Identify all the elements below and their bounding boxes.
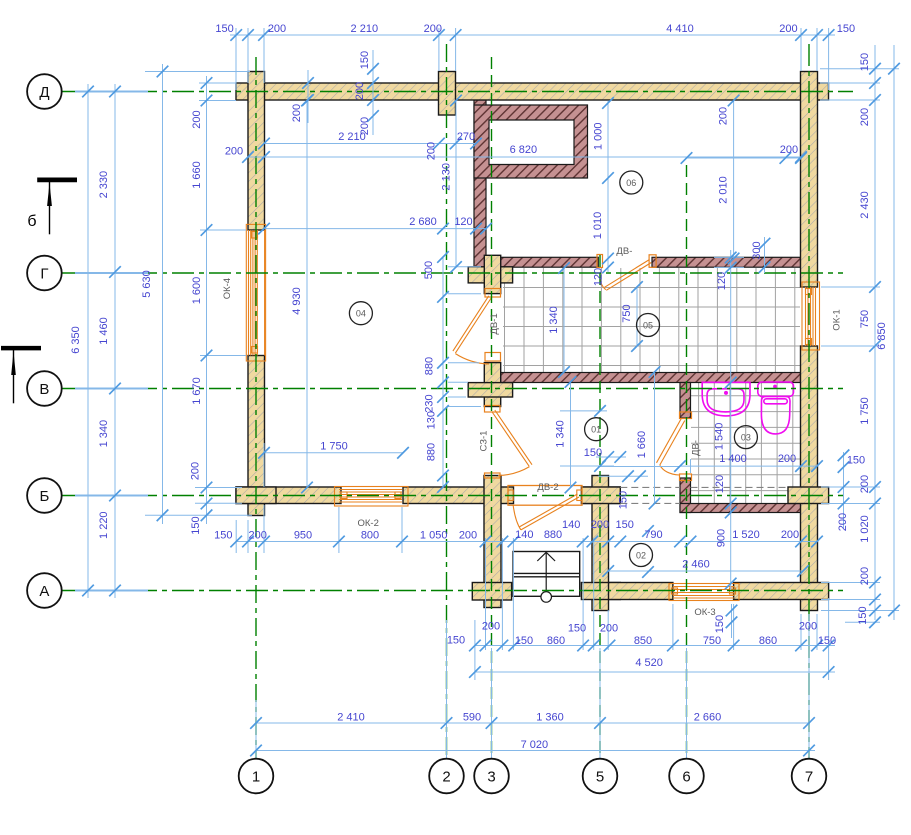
- svg-text:Д: Д: [39, 84, 49, 101]
- svg-text:200: 200: [859, 567, 871, 585]
- svg-text:б: б: [27, 213, 36, 230]
- svg-text:880: 880: [544, 529, 562, 541]
- svg-text:750: 750: [703, 635, 721, 647]
- svg-text:1 660: 1 660: [636, 431, 648, 459]
- svg-text:1 520: 1 520: [732, 529, 760, 541]
- svg-text:1 750: 1 750: [320, 441, 348, 453]
- svg-text:850: 850: [634, 635, 652, 647]
- svg-text:200: 200: [859, 475, 871, 493]
- svg-text:750: 750: [621, 304, 633, 322]
- svg-text:200: 200: [780, 144, 798, 156]
- svg-text:04: 04: [356, 309, 366, 319]
- svg-text:ОК-1: ОК-1: [832, 309, 843, 330]
- svg-text:120: 120: [714, 475, 726, 493]
- svg-text:6 850: 6 850: [876, 322, 888, 350]
- svg-text:01: 01: [591, 425, 601, 435]
- svg-text:2 680: 2 680: [409, 216, 437, 228]
- svg-text:1 540: 1 540: [714, 423, 726, 451]
- svg-text:200: 200: [426, 142, 438, 160]
- svg-text:1 020: 1 020: [859, 515, 871, 543]
- svg-text:4 410: 4 410: [666, 23, 694, 35]
- svg-text:5 630: 5 630: [141, 270, 153, 298]
- svg-text:950: 950: [294, 530, 312, 542]
- svg-text:200: 200: [600, 623, 618, 635]
- svg-text:300: 300: [751, 241, 763, 259]
- svg-text:200: 200: [359, 117, 371, 135]
- svg-text:200: 200: [249, 530, 267, 542]
- svg-text:200: 200: [799, 621, 817, 633]
- svg-text:200: 200: [291, 104, 303, 122]
- svg-text:200: 200: [354, 82, 366, 100]
- svg-text:2: 2: [442, 769, 450, 786]
- svg-text:ДВ-: ДВ-: [616, 246, 632, 257]
- svg-text:06: 06: [626, 178, 636, 188]
- svg-text:ДВ-: ДВ-: [691, 440, 702, 456]
- svg-text:1 340: 1 340: [555, 420, 567, 448]
- svg-text:860: 860: [547, 635, 565, 647]
- svg-text:150: 150: [515, 635, 533, 647]
- svg-text:150: 150: [359, 51, 371, 69]
- svg-text:150: 150: [618, 491, 630, 509]
- svg-text:1 050: 1 050: [420, 530, 448, 542]
- svg-text:150: 150: [859, 53, 871, 71]
- svg-text:790: 790: [644, 529, 662, 541]
- svg-text:4 520: 4 520: [635, 657, 663, 669]
- svg-text:150: 150: [215, 23, 233, 35]
- svg-text:880: 880: [424, 357, 436, 375]
- svg-text:2 010: 2 010: [718, 176, 730, 204]
- svg-text:200: 200: [190, 462, 202, 480]
- svg-text:1 600: 1 600: [191, 277, 203, 305]
- svg-text:СЗ-1: СЗ-1: [478, 431, 489, 452]
- svg-text:2 430: 2 430: [859, 191, 871, 219]
- svg-text:1 360: 1 360: [536, 712, 564, 724]
- svg-text:800: 800: [361, 530, 379, 542]
- svg-text:2 330: 2 330: [98, 171, 110, 199]
- svg-text:1 340: 1 340: [548, 306, 560, 334]
- svg-text:200: 200: [225, 146, 243, 158]
- svg-text:2 210: 2 210: [351, 23, 379, 35]
- svg-text:150: 150: [847, 455, 865, 467]
- svg-text:150: 150: [616, 519, 634, 531]
- svg-text:05: 05: [643, 320, 653, 330]
- svg-text:03: 03: [741, 432, 751, 442]
- svg-text:150: 150: [818, 635, 836, 647]
- svg-text:140: 140: [515, 529, 533, 541]
- svg-text:6 350: 6 350: [70, 326, 82, 354]
- svg-text:200: 200: [718, 107, 730, 125]
- svg-text:270: 270: [457, 131, 475, 143]
- svg-text:200: 200: [482, 621, 500, 633]
- svg-text:120: 120: [454, 216, 472, 228]
- svg-text:2 410: 2 410: [337, 712, 365, 724]
- svg-text:1 010: 1 010: [592, 212, 604, 240]
- svg-text:1: 1: [252, 769, 260, 786]
- svg-text:500: 500: [423, 261, 435, 279]
- svg-text:02: 02: [636, 550, 646, 560]
- svg-text:ОК-4: ОК-4: [222, 278, 233, 299]
- svg-text:900: 900: [716, 529, 728, 547]
- svg-text:1 670: 1 670: [191, 377, 203, 405]
- svg-text:120: 120: [592, 268, 604, 286]
- svg-text:200: 200: [781, 529, 799, 541]
- svg-text:4 930: 4 930: [291, 287, 303, 315]
- svg-text:150: 150: [568, 623, 586, 635]
- svg-text:6 820: 6 820: [510, 144, 538, 156]
- svg-text:7: 7: [805, 769, 813, 786]
- svg-text:Б: Б: [39, 488, 49, 505]
- svg-text:1 660: 1 660: [191, 161, 203, 189]
- svg-text:5: 5: [596, 769, 604, 786]
- svg-text:1 750: 1 750: [859, 397, 871, 425]
- svg-text:1 220: 1 220: [98, 511, 110, 539]
- svg-text:200: 200: [778, 453, 796, 465]
- svg-text:2 460: 2 460: [682, 559, 710, 571]
- svg-text:Г: Г: [40, 266, 48, 283]
- svg-text:ОК-3: ОК-3: [694, 607, 715, 618]
- svg-text:ОК-2: ОК-2: [358, 518, 379, 529]
- svg-text:1 400: 1 400: [719, 453, 747, 465]
- svg-text:2 130: 2 130: [440, 163, 452, 191]
- svg-text:200: 200: [779, 23, 797, 35]
- svg-text:150: 150: [584, 447, 602, 459]
- svg-text:230: 230: [424, 394, 436, 412]
- svg-text:150: 150: [837, 23, 855, 35]
- svg-text:120: 120: [716, 272, 728, 290]
- svg-text:В: В: [39, 381, 49, 398]
- svg-text:200: 200: [191, 110, 203, 128]
- svg-text:А: А: [39, 583, 49, 600]
- svg-text:200: 200: [859, 108, 871, 126]
- svg-text:750: 750: [859, 310, 871, 328]
- svg-text:7 020: 7 020: [521, 739, 549, 751]
- svg-text:200: 200: [459, 530, 477, 542]
- svg-text:ДВ-2: ДВ-2: [537, 482, 558, 493]
- svg-text:150: 150: [857, 606, 869, 624]
- svg-text:200: 200: [837, 513, 849, 531]
- svg-text:140: 140: [562, 519, 580, 531]
- svg-text:860: 860: [759, 635, 777, 647]
- svg-text:200: 200: [424, 23, 442, 35]
- svg-text:2 660: 2 660: [694, 712, 722, 724]
- svg-text:1 000: 1 000: [592, 123, 604, 151]
- svg-text:150: 150: [714, 615, 726, 633]
- svg-text:1 460: 1 460: [98, 317, 110, 345]
- svg-text:150: 150: [447, 635, 465, 647]
- svg-text:880: 880: [426, 443, 438, 461]
- svg-text:3: 3: [487, 769, 495, 786]
- svg-text:150: 150: [190, 516, 202, 534]
- svg-text:200: 200: [268, 23, 286, 35]
- svg-text:590: 590: [463, 712, 481, 724]
- svg-text:150: 150: [214, 530, 232, 542]
- svg-text:200: 200: [591, 519, 609, 531]
- svg-text:1 340: 1 340: [98, 420, 110, 448]
- svg-text:ДВ-1: ДВ-1: [489, 313, 500, 334]
- svg-text:130: 130: [426, 411, 438, 429]
- svg-text:6: 6: [682, 769, 690, 786]
